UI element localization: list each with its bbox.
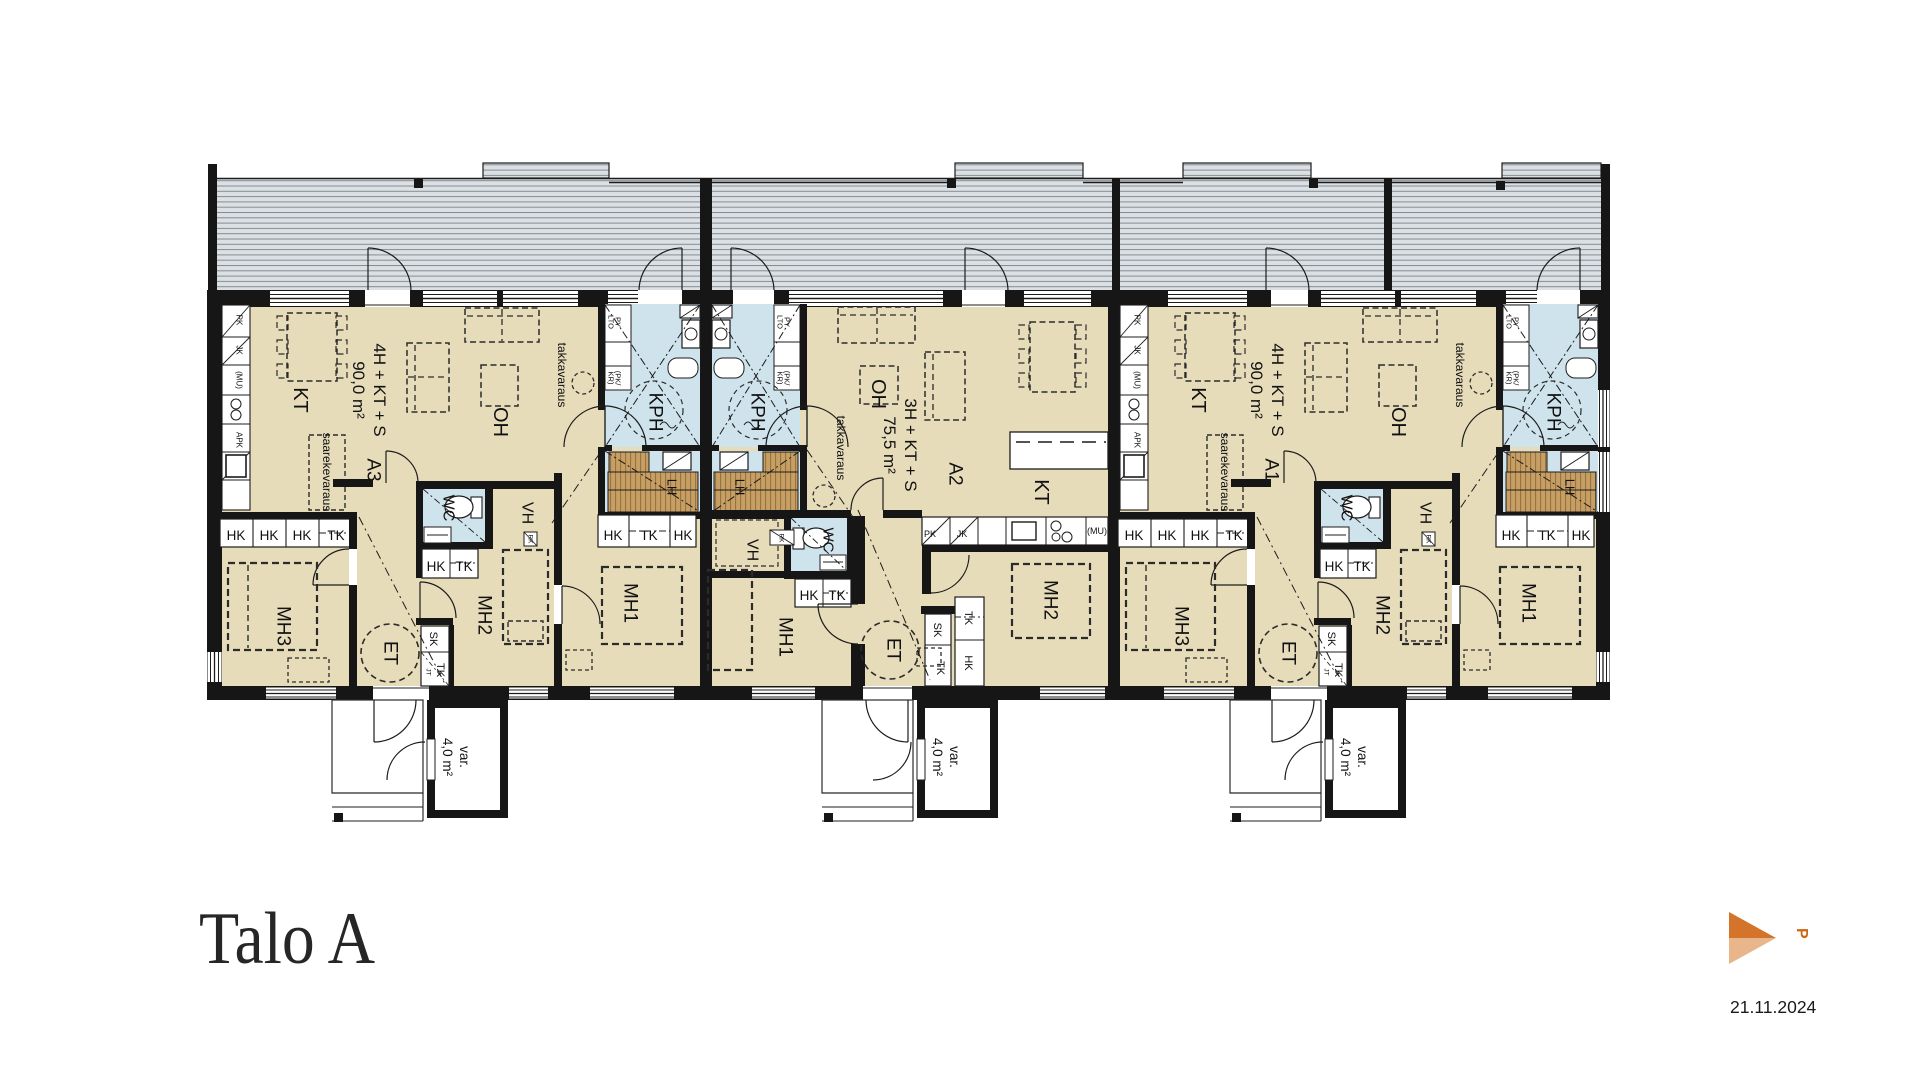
svg-text:KT: KT [1030,479,1052,505]
svg-text:PK: PK [924,529,936,539]
svg-text:LTO: LTO [1505,315,1514,329]
svg-text:MH3: MH3 [273,606,294,646]
svg-text:saarekevaraus: saarekevaraus [320,433,334,512]
svg-text:RK: RK [778,533,785,543]
svg-text:TK: TK [1225,528,1242,543]
svg-text:HK: HK [1191,528,1210,543]
svg-text:APK: APK [235,432,244,449]
svg-text:WC: WC [1338,495,1355,522]
svg-text:P: P [1793,928,1810,939]
svg-text:ET: ET [380,641,401,666]
svg-text:OH: OH [1387,407,1409,437]
svg-text:TK: TK [962,611,974,626]
svg-text:LH: LH [1563,479,1578,496]
svg-text:HK: HK [293,528,312,543]
svg-text:MH3: MH3 [1171,606,1192,646]
svg-text:A1: A1 [1261,458,1282,481]
svg-text:saarekevaraus: saarekevaraus [1218,433,1232,512]
svg-text:HK: HK [604,528,623,543]
svg-text:VH: VH [744,539,761,561]
svg-text:MH2: MH2 [1040,580,1061,620]
svg-text:KT: KT [1187,387,1209,413]
svg-text:PK: PK [235,315,244,326]
svg-text:JK: JK [235,345,244,355]
svg-text:Talo A: Talo A [199,898,375,980]
svg-text:KT: KT [289,387,311,413]
svg-text:HK: HK [1158,528,1177,543]
svg-text:APK: APK [1133,432,1142,449]
svg-text:KPH: KPH [1543,392,1564,431]
svg-text:KPH: KPH [747,392,768,431]
svg-text:OH: OH [489,407,511,437]
svg-text:HK: HK [1572,528,1591,543]
svg-text:TK: TK [934,661,946,676]
svg-text:TK: TK [455,559,472,574]
svg-text:A3: A3 [363,458,384,481]
svg-text:A2: A2 [945,462,966,485]
svg-text:HK: HK [1502,528,1521,543]
svg-text:HK: HK [1325,559,1344,574]
svg-text:(MU): (MU) [1133,371,1142,389]
svg-text:PK: PK [1133,315,1142,326]
svg-text:JT: JT [425,668,432,675]
svg-text:HK: HK [227,528,246,543]
svg-text:RK: RK [527,534,534,544]
svg-text:KPH: KPH [645,392,666,431]
svg-text:TK: TK [327,528,344,543]
svg-text:WC: WC [820,528,837,553]
svg-text:HK: HK [260,528,279,543]
svg-text:takkavaraus: takkavaraus [834,416,848,481]
svg-text:SK: SK [427,632,439,647]
svg-text:LH: LH [665,479,680,496]
svg-text:TK: TK [640,528,657,543]
svg-text:TK: TK [1538,528,1555,543]
svg-text:VH: VH [1417,502,1434,524]
svg-text:RK: RK [1425,534,1432,544]
svg-text:MH2: MH2 [1372,595,1393,635]
svg-text:TK: TK [828,588,845,603]
svg-text:VH: VH [519,502,536,524]
svg-text:HK: HK [800,588,819,603]
svg-text:KR): KR) [1505,372,1514,385]
svg-text:WC: WC [440,495,457,522]
svg-text:ET: ET [883,638,904,663]
svg-text:JK: JK [957,529,968,539]
svg-text:21.11.2024: 21.11.2024 [1730,997,1817,1017]
svg-text:MH1: MH1 [775,617,796,657]
svg-text:JK: JK [1133,345,1142,355]
svg-text:SK: SK [931,623,943,638]
svg-text:LH: LH [733,479,748,496]
svg-text:HK: HK [674,528,693,543]
svg-text:MH1: MH1 [1518,583,1539,623]
svg-text:takkavaraus: takkavaraus [1453,343,1467,408]
svg-text:MH2: MH2 [474,595,495,635]
svg-text:MH1: MH1 [620,583,641,623]
svg-text:(MU): (MU) [1087,526,1107,536]
svg-text:takkavaraus: takkavaraus [555,343,569,408]
svg-text:HK: HK [427,559,446,574]
svg-text:LTO: LTO [776,315,785,329]
svg-text:TK: TK [1353,559,1370,574]
svg-text:LTO: LTO [607,315,616,329]
svg-text:KR): KR) [607,372,616,385]
svg-text:OH: OH [867,379,889,409]
svg-text:ET: ET [1278,641,1299,666]
svg-text:HK: HK [1125,528,1144,543]
svg-text:SK: SK [1325,632,1337,647]
svg-text:HK: HK [962,655,974,671]
svg-text:KR): KR) [776,372,785,385]
svg-text:(MU): (MU) [235,371,244,389]
svg-text:JT: JT [1323,668,1330,675]
